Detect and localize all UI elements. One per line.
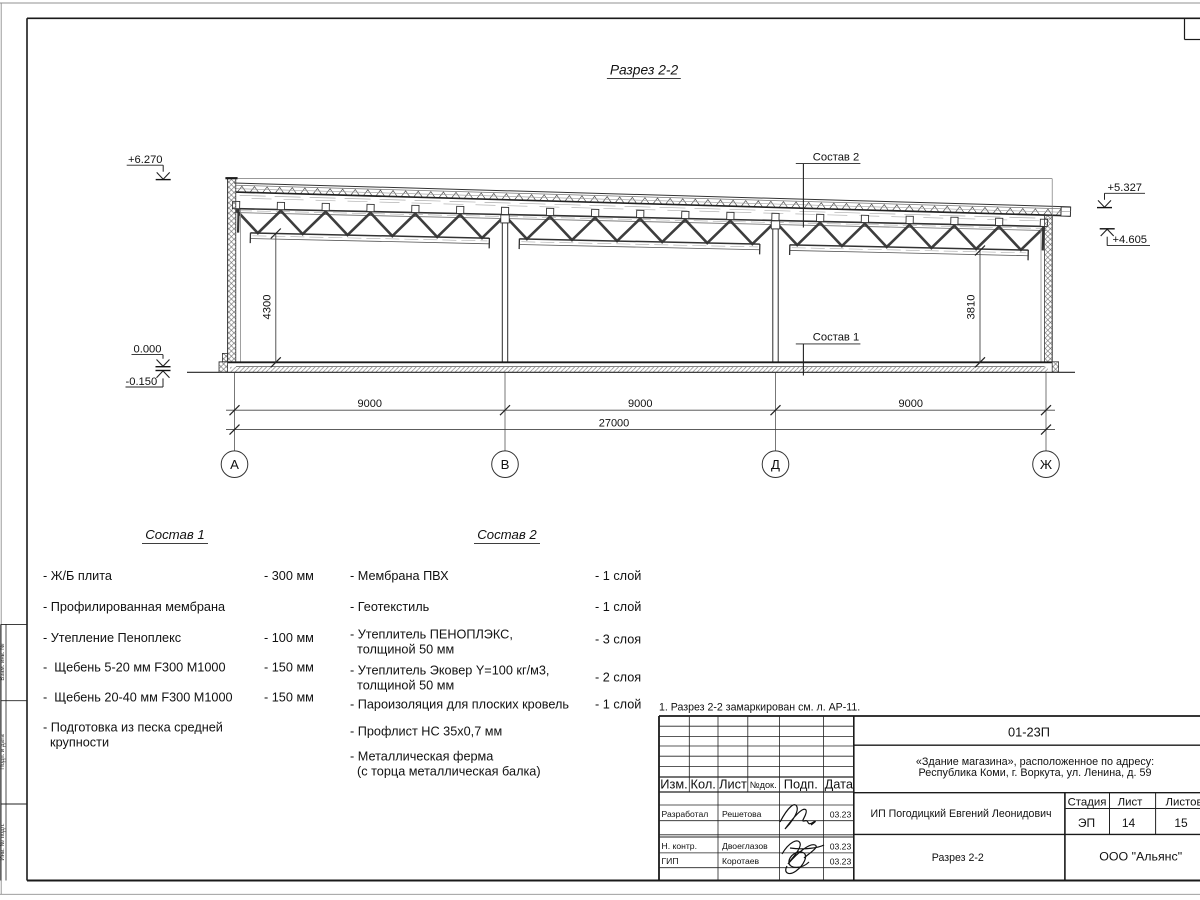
svg-text:9000: 9000: [899, 398, 923, 410]
svg-text:- 1 слой: - 1 слой: [595, 569, 641, 583]
svg-text:Кол.: Кол.: [691, 776, 716, 791]
svg-text:В: В: [501, 457, 510, 472]
svg-text:Лист: Лист: [1118, 796, 1144, 808]
svg-text:Разработал: Разработал: [662, 809, 709, 819]
svg-text:- Металлическая ферма: - Металлическая ферма: [350, 750, 494, 764]
svg-text:Коротаев: Коротаев: [722, 856, 760, 866]
svg-text:Листов: Листов: [1165, 796, 1200, 808]
svg-text:Состав 1: Состав 1: [813, 331, 859, 343]
svg-text:Состав 1: Состав 1: [145, 527, 205, 542]
svg-text:Двоеглазов: Двоеглазов: [722, 841, 768, 851]
svg-text:Подп.: Подп.: [784, 776, 818, 791]
svg-text:03.23: 03.23: [830, 841, 852, 851]
svg-text:ЭП: ЭП: [1078, 816, 1095, 830]
svg-text:- 2 слоя: - 2 слоя: [595, 671, 641, 685]
svg-text:Дата: Дата: [825, 776, 854, 791]
svg-text:Лист: Лист: [719, 776, 747, 791]
svg-text:- 150 мм: - 150 мм: [264, 691, 314, 705]
svg-text:03.23: 03.23: [830, 856, 852, 866]
svg-text:крупности: крупности: [43, 736, 109, 750]
svg-text:Д: Д: [771, 457, 780, 472]
svg-text:Изм.: Изм.: [660, 776, 687, 791]
svg-text:№док.: №док.: [750, 780, 777, 790]
svg-text:- Утеплитель Эковер Y=100 кг/м: - Утеплитель Эковер Y=100 кг/м3,: [350, 664, 549, 678]
svg-text:- Мембрана ПВХ: - Мембрана ПВХ: [350, 569, 449, 583]
svg-text:- Утеплитель ПЕНОПЛЭКС,: - Утеплитель ПЕНОПЛЭКС,: [350, 628, 513, 642]
svg-text:- 300 мм: - 300 мм: [264, 569, 314, 583]
svg-text:Н. контр.: Н. контр.: [662, 841, 697, 851]
svg-text:Ж: Ж: [1040, 457, 1052, 472]
svg-text:ГИП: ГИП: [662, 856, 679, 866]
svg-text:+4.605: +4.605: [1113, 234, 1148, 246]
svg-text:- 1 слой: - 1 слой: [595, 600, 641, 614]
svg-text:9000: 9000: [628, 398, 652, 410]
svg-text:Взам. инв. №: Взам. инв. №: [0, 643, 6, 680]
svg-text:0.000: 0.000: [134, 344, 162, 356]
svg-text:3810: 3810: [966, 295, 978, 320]
svg-text:9000: 9000: [358, 398, 382, 410]
svg-text:- 3 слоя: - 3 слоя: [595, 633, 641, 647]
svg-text:- 100 мм: - 100 мм: [264, 631, 314, 645]
svg-text:Разрез 2-2: Разрез 2-2: [610, 63, 679, 78]
svg-text:ООО "Альянс": ООО "Альянс": [1099, 850, 1182, 864]
svg-text:- 1 слой: - 1 слой: [595, 698, 641, 712]
svg-text:+5.327: +5.327: [1108, 182, 1143, 194]
svg-text:Состав 2: Состав 2: [477, 527, 537, 542]
svg-text:Стадия: Стадия: [1068, 796, 1107, 808]
svg-text:Разрез 2-2: Разрез 2-2: [932, 852, 984, 864]
svg-text:ИП Погодицкий Евгений Леонидов: ИП Погодицкий Евгений Леонидович: [870, 808, 1051, 820]
svg-text:толщиной 50 мм: толщиной 50 мм: [350, 679, 454, 693]
svg-text:Республика Коми, г. Воркута, у: Республика Коми, г. Воркута, ул. Ленина,…: [919, 767, 1152, 779]
svg-text:14: 14: [1122, 816, 1136, 830]
svg-text:- Геотекстиль: - Геотекстиль: [350, 600, 430, 614]
svg-text:- Утепление Пеноплекс: - Утепление Пеноплекс: [43, 631, 182, 645]
svg-text:4300: 4300: [262, 295, 274, 320]
svg-text:- Пароизоляция для плоских кро: - Пароизоляция для плоских кровель: [350, 698, 569, 712]
svg-text:03.23: 03.23: [830, 810, 852, 820]
svg-text:27000: 27000: [599, 417, 630, 429]
svg-text:+6.270: +6.270: [128, 154, 163, 166]
svg-text:01-23П: 01-23П: [1008, 725, 1050, 740]
svg-text:15: 15: [1174, 816, 1188, 830]
svg-text:- Щебень 20-40 мм F300 М1000: - Щебень 20-40 мм F300 М1000: [43, 691, 233, 705]
svg-text:(с торца металлическая балка): (с торца металлическая балка): [350, 765, 541, 779]
svg-text:- Щебень 5-20 мм F300 М1000: - Щебень 5-20 мм F300 М1000: [43, 661, 226, 675]
svg-text:толщиной 50 мм: толщиной 50 мм: [350, 643, 454, 657]
svg-text:- 150 мм: - 150 мм: [264, 661, 314, 675]
svg-text:- Профлист НС 35х0,7 мм: - Профлист НС 35х0,7 мм: [350, 725, 502, 739]
svg-text:- Ж/Б плита: - Ж/Б плита: [43, 569, 113, 583]
svg-text:Инв. № подл.: Инв. № подл.: [0, 823, 6, 861]
svg-text:А: А: [230, 457, 239, 472]
svg-text:1. Разрез 2-2 замаркирован см.: 1. Разрез 2-2 замаркирован см. л. АР-11.: [659, 701, 860, 713]
svg-text:Решетова: Решетова: [722, 809, 762, 819]
svg-text:-0.150: -0.150: [126, 376, 158, 388]
svg-text:Подп. и дата: Подп. и дата: [0, 734, 6, 770]
svg-text:Состав 2: Состав 2: [813, 151, 859, 163]
svg-text:- Профилированная мембрана: - Профилированная мембрана: [43, 600, 226, 614]
svg-text:- Подготовка из песка средней: - Подготовка из песка средней: [43, 721, 223, 735]
